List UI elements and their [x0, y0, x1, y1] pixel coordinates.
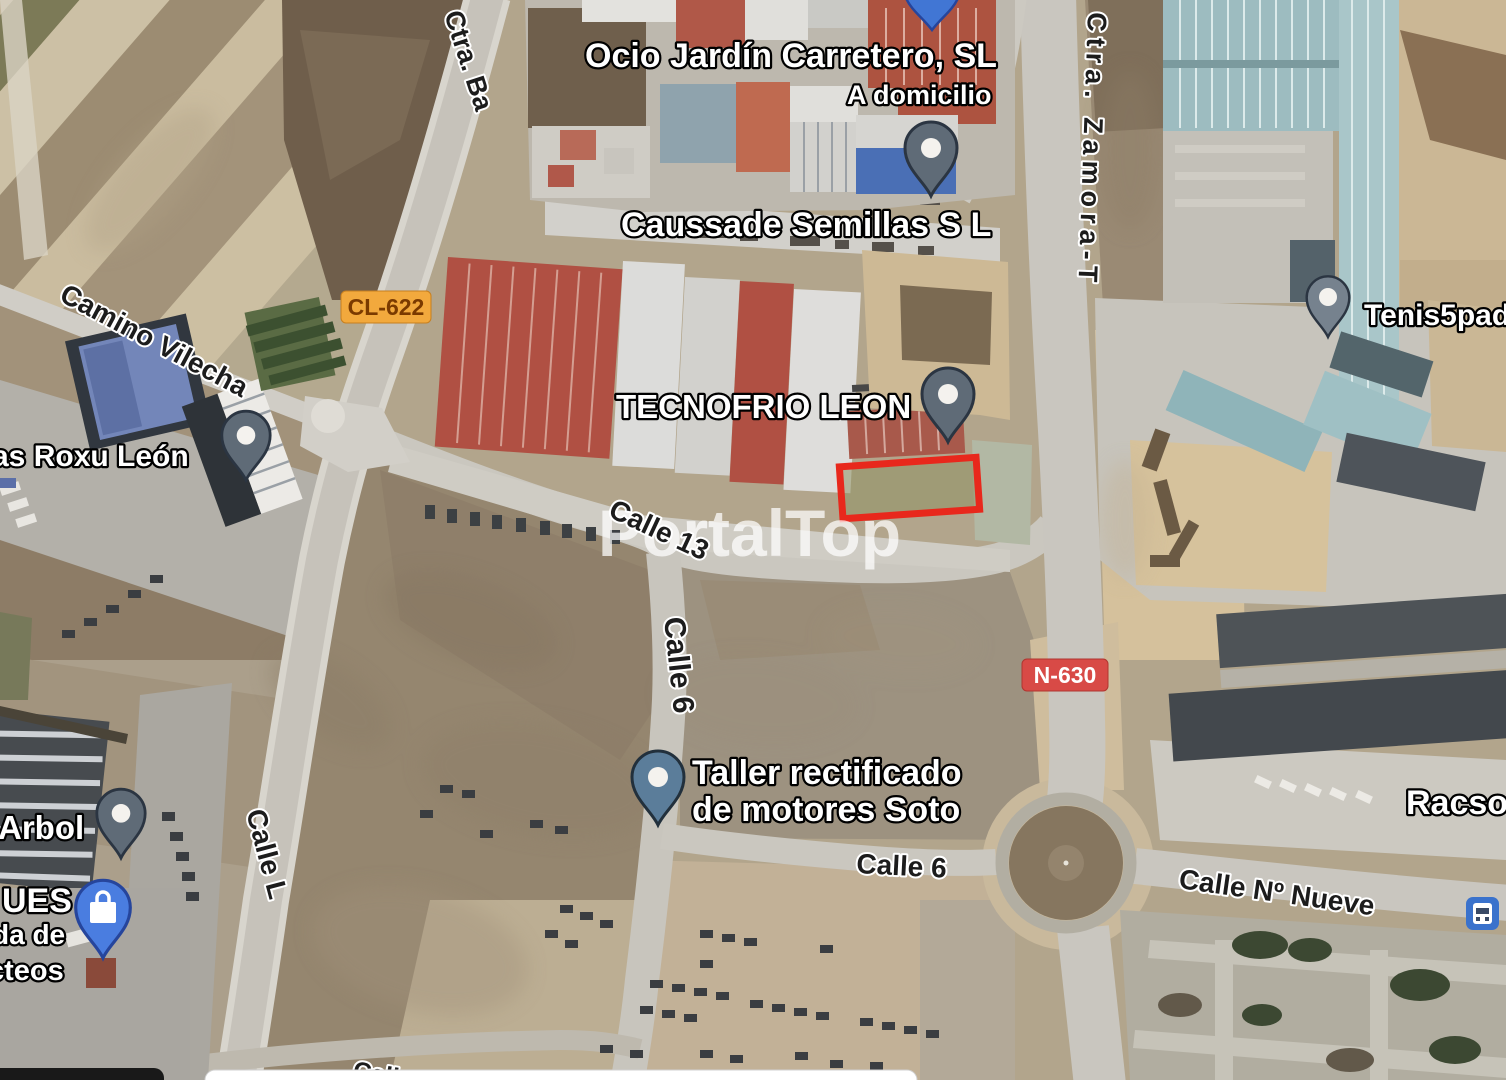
svg-text:Caussade Semillas S L: Caussade Semillas S L — [621, 206, 991, 244]
svg-text:cteos: cteos — [0, 955, 64, 987]
svg-text:Tenis5pad: Tenis5pad — [1364, 299, 1506, 332]
svg-text:TECNOFRIO LEON: TECNOFRIO LEON — [616, 388, 911, 425]
svg-text:Ocio Jardín Carretero, SL: Ocio Jardín Carretero, SL — [585, 37, 997, 75]
svg-text:Taller rectificado: Taller rectificado — [692, 754, 962, 792]
svg-text:as Roxu León: as Roxu León — [0, 440, 189, 473]
svg-text:da de: da de — [0, 919, 65, 950]
svg-text:Calle 6: Calle 6 — [856, 848, 948, 884]
svg-text:de motores Soto: de motores Soto — [692, 791, 960, 829]
svg-text:CL-622: CL-622 — [348, 294, 425, 320]
svg-text:Arbol: Arbol — [0, 809, 84, 846]
svg-text:Racso: Racso — [1406, 784, 1506, 822]
svg-text:UES: UES — [2, 882, 72, 920]
svg-text:N-630: N-630 — [1034, 662, 1097, 688]
svg-text:A domicilio: A domicilio — [847, 80, 992, 110]
